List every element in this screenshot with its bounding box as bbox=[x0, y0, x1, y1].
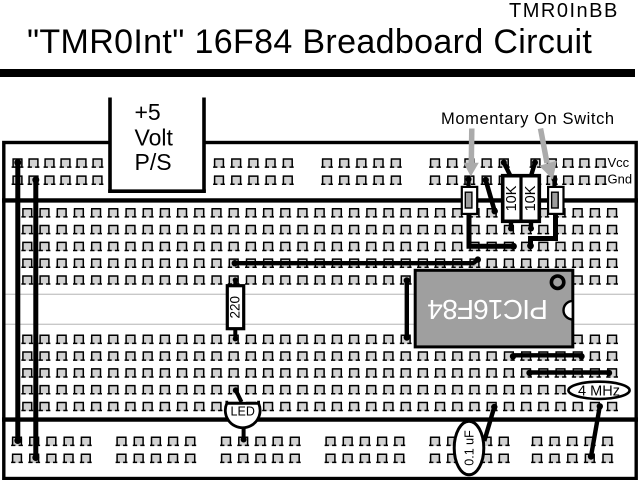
svg-text:P/S: P/S bbox=[135, 149, 172, 175]
svg-text:10K: 10K bbox=[504, 185, 520, 211]
svg-text:"TMR0Int" 16F84 Breadboard Cir: "TMR0Int" 16F84 Breadboard Circuit bbox=[27, 23, 592, 61]
svg-text:4 MHz: 4 MHz bbox=[578, 383, 620, 399]
svg-text:LED: LED bbox=[231, 405, 255, 419]
svg-text:TMR0InBB: TMR0InBB bbox=[509, 0, 619, 22]
svg-text:Momentary On Switch: Momentary On Switch bbox=[441, 110, 615, 128]
svg-text:+5: +5 bbox=[135, 99, 161, 125]
svg-text:PIC16F84: PIC16F84 bbox=[428, 294, 548, 325]
svg-text:Gnd: Gnd bbox=[608, 172, 633, 187]
svg-text:0.1 uF: 0.1 uF bbox=[463, 430, 477, 466]
svg-text:Volt: Volt bbox=[135, 124, 174, 150]
svg-text:Vcc: Vcc bbox=[608, 155, 630, 170]
svg-text:10K: 10K bbox=[523, 185, 539, 211]
svg-text:220: 220 bbox=[228, 296, 243, 319]
